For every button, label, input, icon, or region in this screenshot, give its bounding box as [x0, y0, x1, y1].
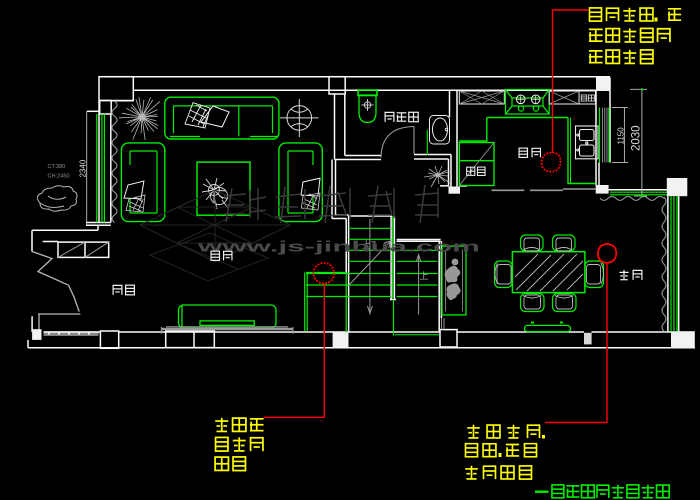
svg-text:1150: 1150	[616, 127, 625, 145]
svg-text:2030: 2030	[631, 125, 643, 151]
svg-text:2340: 2340	[79, 159, 88, 177]
svg-text:CT:380: CT:380	[48, 164, 66, 170]
svg-text:上: 上	[420, 271, 429, 281]
svg-text:www.js-jinhua.com: www.js-jinhua.com	[196, 240, 480, 256]
svg-text:CH:2450: CH:2450	[48, 173, 70, 179]
